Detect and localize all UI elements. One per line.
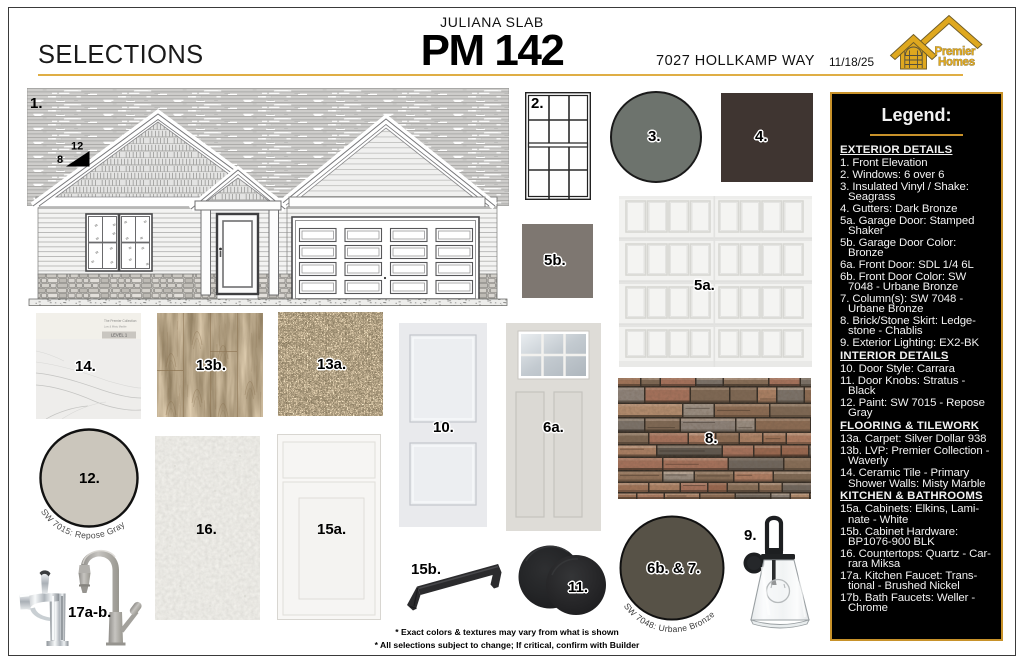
svg-text:LEVEL 1: LEVEL 1 (111, 333, 128, 338)
svg-text:The Premier Collection: The Premier Collection (104, 319, 137, 323)
svg-text:Homes: Homes (938, 57, 975, 69)
svg-text:8: 8 (57, 154, 63, 166)
svg-text:12: 12 (71, 141, 83, 153)
svg-text:Low & Misty Marble: Low & Misty Marble (104, 325, 127, 329)
